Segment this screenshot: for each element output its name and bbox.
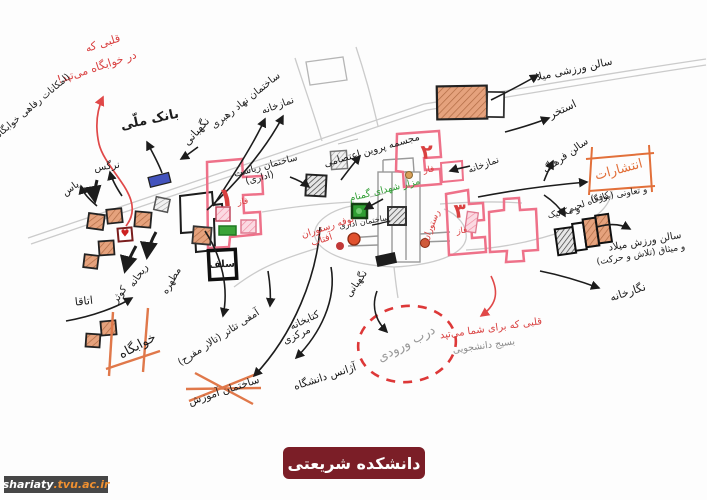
central-core-building — [388, 207, 406, 225]
shrine-dot — [356, 208, 362, 214]
workshop-buildings — [554, 214, 613, 255]
label-rooms: اتاقا — [74, 295, 93, 309]
green-strip-building — [219, 226, 236, 235]
pink-annex — [241, 220, 256, 233]
label-phase3-word: فاز — [456, 226, 468, 237]
label-phase1-word: فاز — [237, 197, 249, 208]
label-phase1-number: ۱ — [217, 184, 235, 215]
small-building-2 — [154, 197, 170, 213]
site-url: shariaty.tvu.ac.ir — [4, 476, 108, 493]
campus-map-page: قلبی که در خوابگاه می‌تپد! (امکانات رفاه… — [0, 0, 707, 500]
fountain-marker — [348, 233, 360, 245]
site-url-main: shariaty — [3, 478, 54, 491]
milad-hall-annex — [487, 92, 504, 117]
dorm-block-large — [192, 226, 211, 245]
red-basij-arrow — [481, 276, 496, 316]
label-phase2-number: ۲ — [420, 140, 434, 164]
site-title-banner: دانشکده شریعتی — [283, 447, 425, 479]
label-cafeteria: سلف — [209, 259, 235, 272]
campus-map-sketch — [0, 0, 707, 500]
milad-hall-building — [437, 86, 488, 120]
presidency-building — [305, 174, 326, 196]
site-url-suffix: .tvu.ac.ir — [53, 478, 109, 491]
phase3-east-building — [489, 198, 538, 262]
buffet-dot — [336, 242, 344, 250]
bus-stop-marker — [148, 172, 171, 187]
label-phase2-word: فاز — [423, 165, 435, 176]
prayer-annex-east — [441, 161, 463, 182]
label-phase3-number: ۳ — [453, 199, 467, 223]
heart-icon: ♥ — [121, 228, 130, 240]
